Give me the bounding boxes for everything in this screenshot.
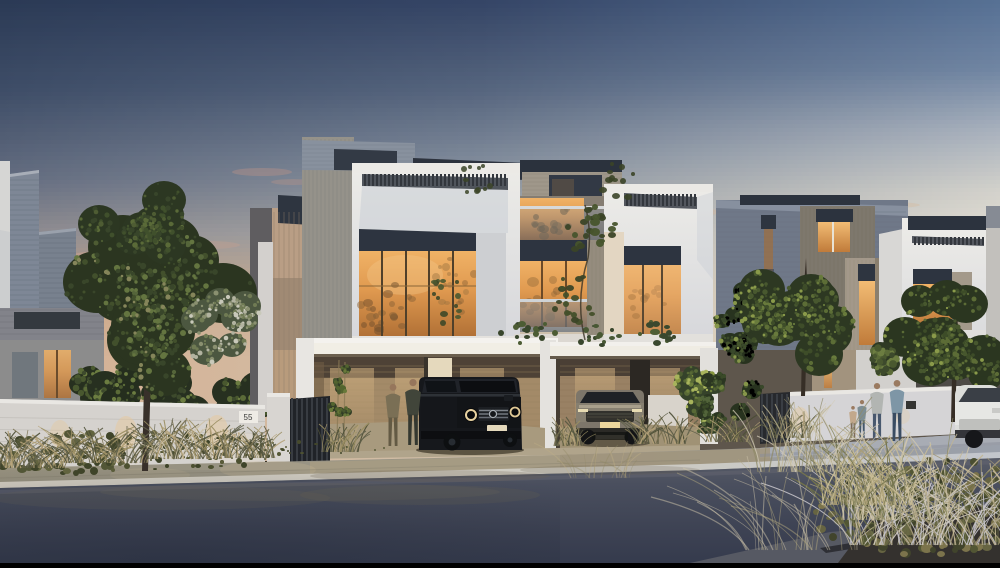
svg-text:55: 55 [244,413,253,422]
